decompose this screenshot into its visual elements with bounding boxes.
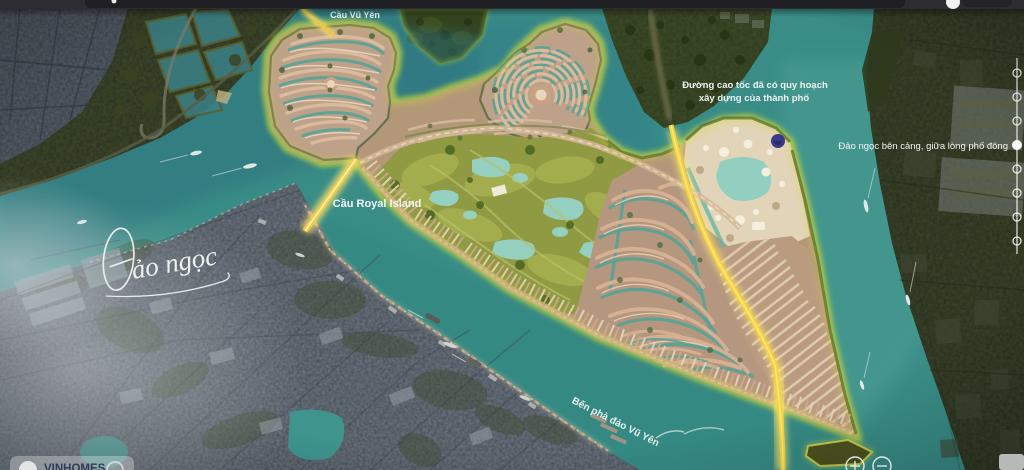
svg-text:VINHOMES: VINHOMES xyxy=(44,463,106,470)
